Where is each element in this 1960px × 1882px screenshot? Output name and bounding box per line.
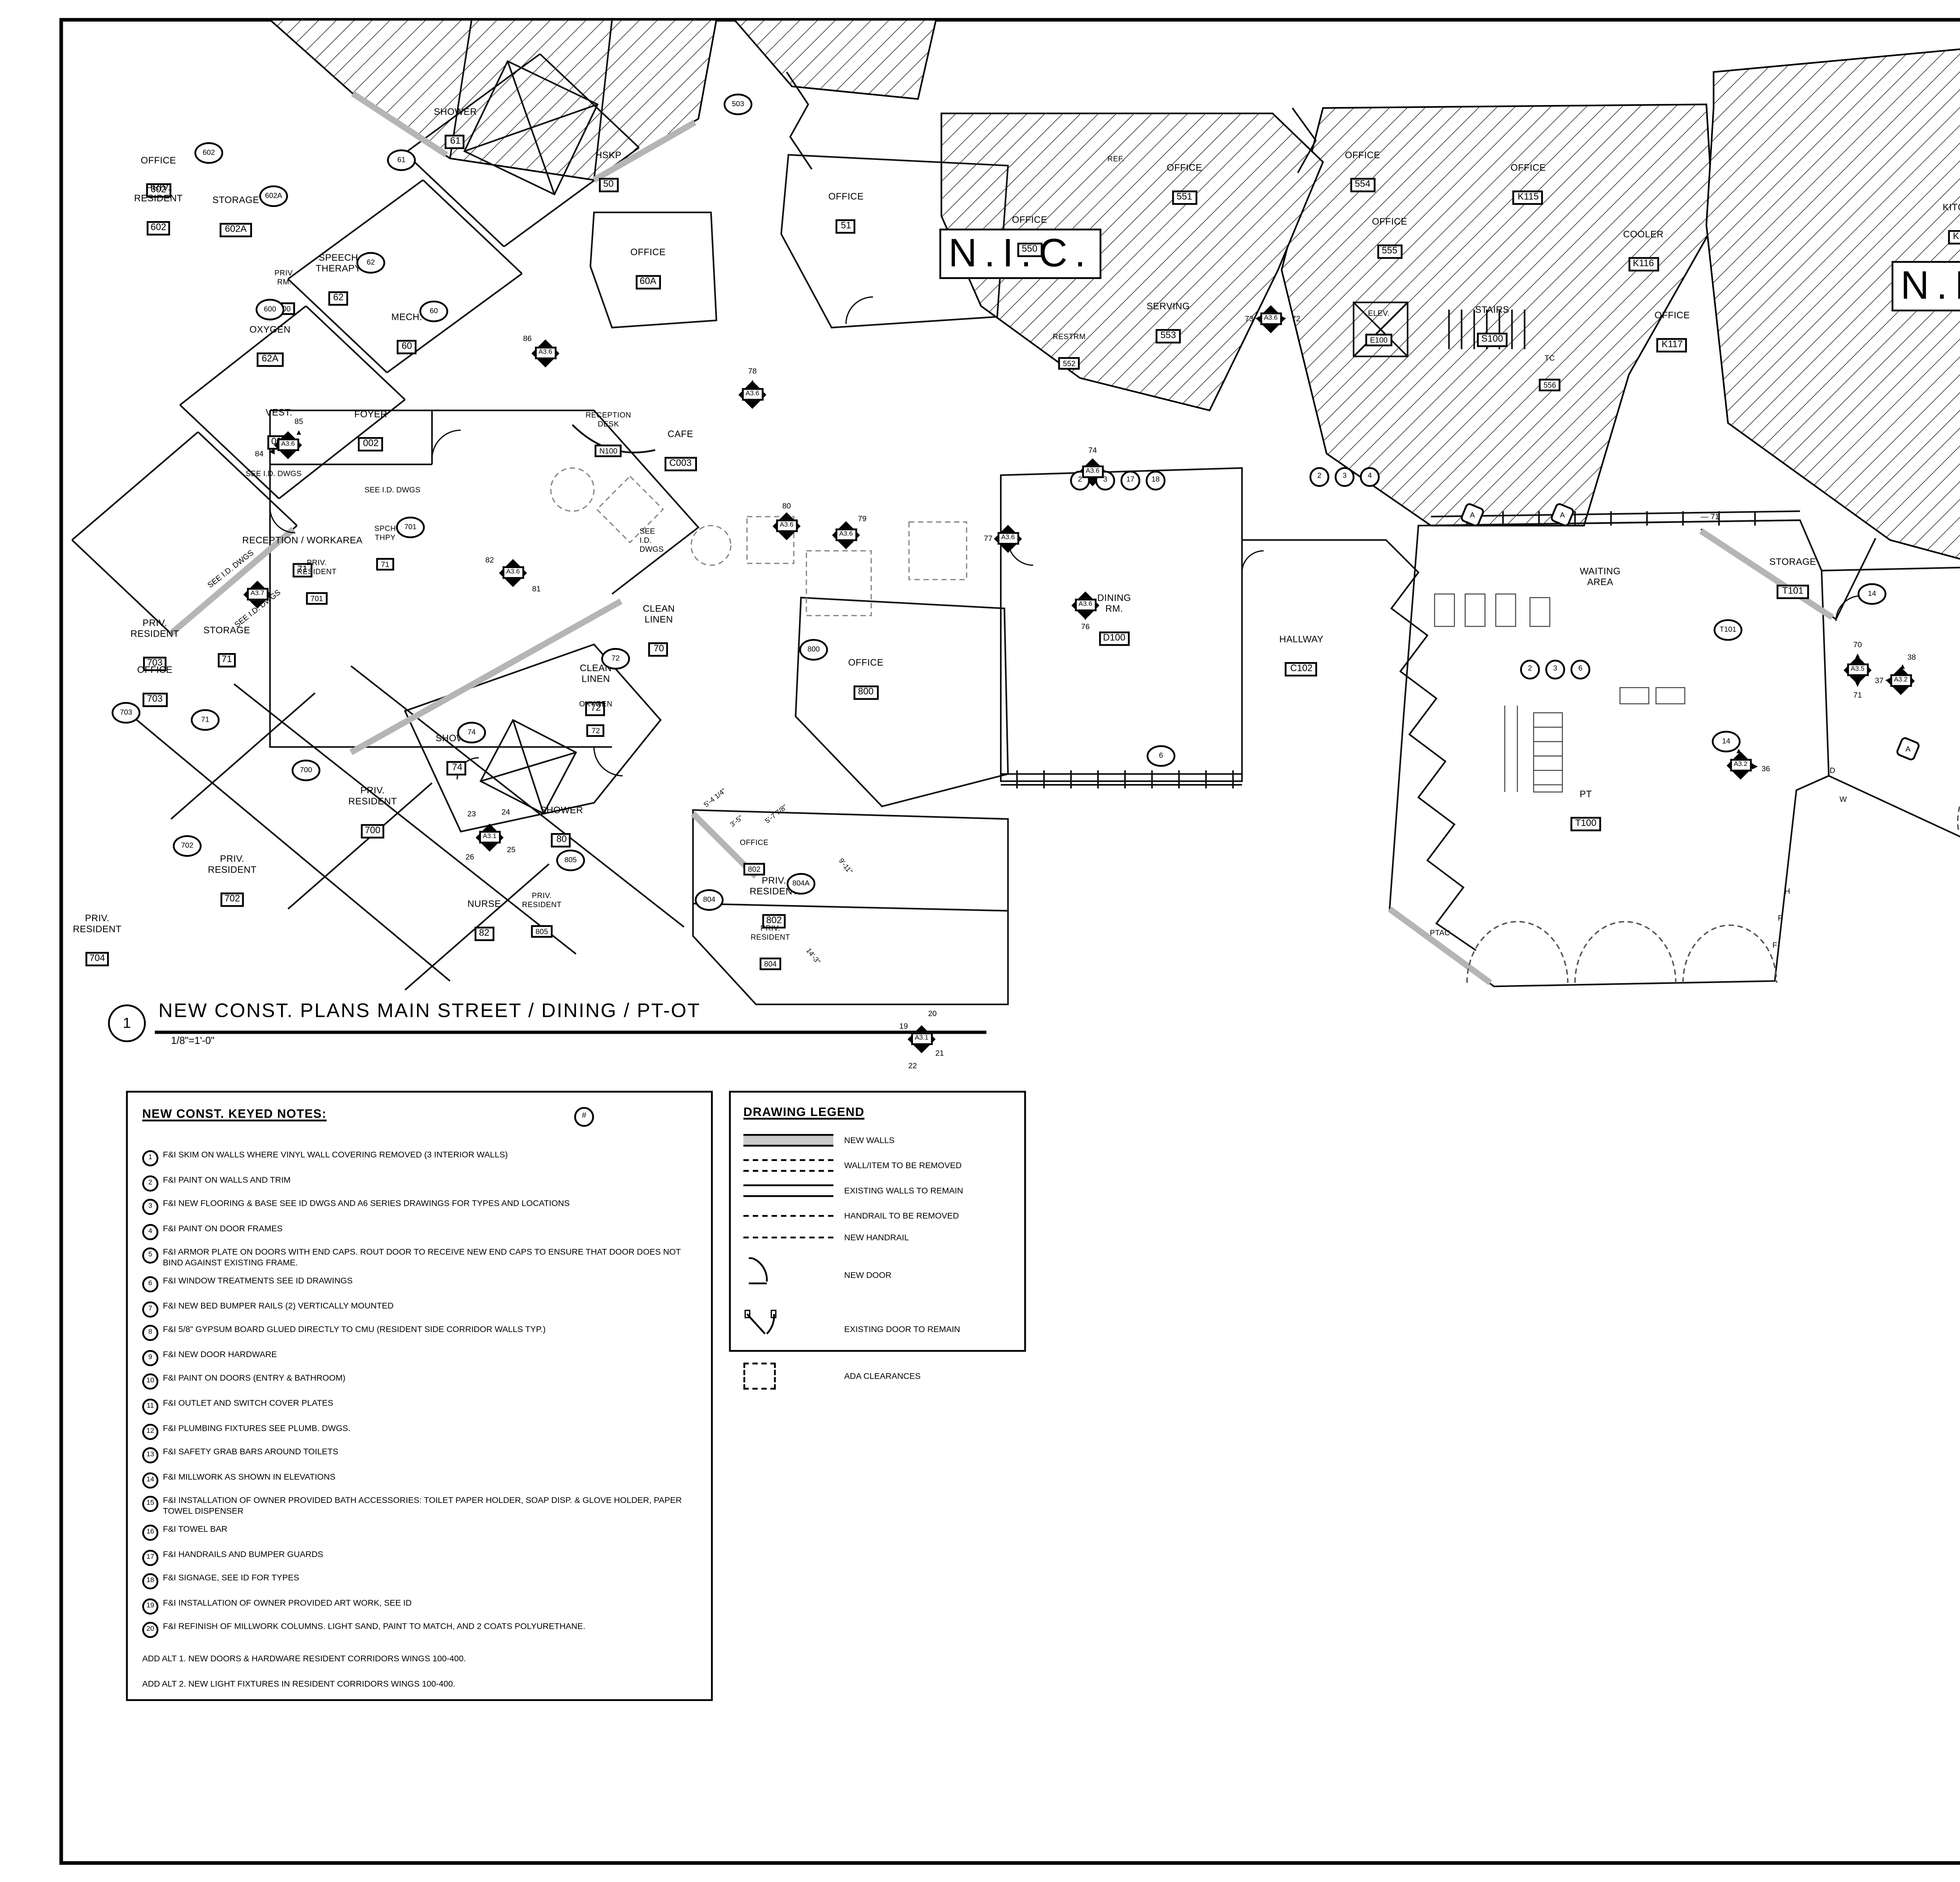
room-label: SPEECH THERAPY62 bbox=[316, 255, 361, 310]
room-name: REF. bbox=[1107, 156, 1125, 165]
keyed-note-text: F&I HANDRAILS AND BUMPER GUARDS bbox=[163, 1549, 323, 1565]
drawing-legend-panel: DRAWING LEGEND NEW WALLSWALL/ITEM TO BE … bbox=[729, 1091, 1026, 1352]
plan-annotation: 36 bbox=[1762, 764, 1770, 773]
plan-scale: 1/8"=1'-0" bbox=[171, 1037, 214, 1048]
reference-tag: 71 bbox=[191, 709, 220, 731]
reference-tag: 805 bbox=[556, 849, 585, 871]
legend-symbol-newdoor bbox=[743, 1254, 833, 1296]
room-number: 70 bbox=[649, 642, 668, 657]
legend-item: EXISTING DOOR TO REMAIN bbox=[743, 1309, 1011, 1350]
legend-label: EXISTING DOOR TO REMAIN bbox=[844, 1325, 960, 1334]
room-label: STAIRSS100 bbox=[1475, 307, 1509, 351]
room-number: D100 bbox=[1098, 632, 1130, 647]
keynote-tag: 2 bbox=[1310, 467, 1330, 487]
room-name: PRIV. RM. bbox=[274, 270, 296, 287]
room-label: PTAC bbox=[1430, 930, 1450, 938]
keyed-note-number: 19 bbox=[142, 1598, 158, 1614]
keyed-note-text: F&I 5/8" GYPSUM BOARD GLUED DIRECTLY TO … bbox=[163, 1325, 546, 1341]
room-label: TC556 bbox=[1539, 355, 1561, 397]
room-name: PRIV. RESIDENT bbox=[131, 621, 179, 642]
room-label: SHOWER61 bbox=[434, 109, 477, 153]
keynote-tag: 4 bbox=[1360, 467, 1380, 487]
reference-tag: 800 bbox=[799, 639, 828, 661]
reference-tag: 703 bbox=[112, 702, 140, 724]
keyed-note-number: 13 bbox=[142, 1448, 158, 1464]
keyed-note-text: F&I MILLWORK AS SHOWN IN ELEVATIONS bbox=[163, 1472, 336, 1488]
room-label: OFFICEK115 bbox=[1510, 165, 1546, 209]
keyed-note-number: 9 bbox=[142, 1350, 158, 1366]
room-label: MECH.60 bbox=[391, 315, 422, 359]
room-label: STORAGE71 bbox=[203, 628, 250, 672]
reference-tag: 602 bbox=[194, 142, 223, 164]
room-label: PRIV. RESIDENT704 bbox=[73, 916, 122, 970]
room-name: PRIV. RESIDENT bbox=[348, 788, 397, 809]
legend-item: HANDRAIL TO BE REMOVED bbox=[743, 1211, 1011, 1220]
room-number: 800 bbox=[853, 686, 878, 701]
keynote-sheet-ref: A3.6 bbox=[742, 388, 763, 400]
plan-annotation: 26 bbox=[465, 852, 474, 861]
room-label: SERVING553 bbox=[1147, 304, 1190, 348]
keyed-note: 8F&I 5/8" GYPSUM BOARD GLUED DIRECTLY TO… bbox=[142, 1325, 697, 1341]
room-number: 72 bbox=[587, 724, 604, 737]
legend-label: WALL/ITEM TO BE REMOVED bbox=[844, 1162, 962, 1171]
keyed-note: 7F&I NEW BED BUMPER RAILS (2) VERTICALLY… bbox=[142, 1301, 697, 1317]
keyed-note-text: F&I REFINISH OF MILLWORK COLUMNS. LIGHT … bbox=[163, 1622, 586, 1639]
keynote-tag: 17 bbox=[1120, 471, 1140, 491]
legend-label: NEW WALLS bbox=[844, 1136, 895, 1145]
furniture bbox=[1435, 594, 1960, 810]
keynote-sheet-ref: A3.1 bbox=[479, 831, 500, 843]
legend-label: NEW HANDRAIL bbox=[844, 1232, 909, 1241]
keyed-note: 13F&I SAFETY GRAB BARS AROUND TOILETS bbox=[142, 1448, 697, 1464]
room-name: CLEAN LINEN bbox=[643, 606, 675, 628]
room-label: OFFICE802 bbox=[740, 840, 768, 882]
keyed-note-text: F&I NEW DOOR HARDWARE bbox=[163, 1350, 277, 1366]
room-name: DINING RM. bbox=[1097, 595, 1131, 617]
keyed-note-text: F&I TOWEL BAR bbox=[163, 1525, 228, 1541]
room-name: OFFICE bbox=[1372, 219, 1407, 230]
room-name: STAIRS bbox=[1475, 307, 1509, 318]
plan-annotation: F bbox=[1772, 940, 1777, 949]
plan-annotation: 71 bbox=[1853, 690, 1862, 699]
room-label: RECEPTION DESKN100 bbox=[586, 412, 631, 463]
plan-title: NEW CONST. PLANS MAIN STREET / DINING / … bbox=[158, 1001, 701, 1022]
room-label: CAFEC003 bbox=[664, 432, 696, 475]
plan-annotation: 20 bbox=[928, 1009, 937, 1018]
keyed-note-number: 7 bbox=[142, 1301, 158, 1317]
room-name: OXYGEN bbox=[579, 701, 612, 710]
room-number: 002 bbox=[358, 437, 383, 452]
room-number: 60 bbox=[397, 340, 417, 355]
keyed-note: 20F&I REFINISH OF MILLWORK COLUMNS. LIGH… bbox=[142, 1622, 697, 1639]
room-name: OXYGEN bbox=[249, 327, 290, 338]
room-label: OXYGEN72 bbox=[579, 701, 612, 743]
keyed-note-text: F&I SKIM ON WALLS WHERE VINYL WALL COVER… bbox=[163, 1150, 508, 1166]
keynote-sheet-ref: A3.6 bbox=[503, 566, 523, 579]
keynote-tag: 3 bbox=[1545, 660, 1565, 680]
room-number: 701 bbox=[306, 592, 328, 604]
room-number: 62A bbox=[257, 352, 283, 368]
plan-annotation: 23 bbox=[467, 809, 476, 818]
room-label: DINING RM.D100 bbox=[1097, 595, 1131, 650]
add-alternate-note: ADD ALT 2. NEW LIGHT FIXTURES IN RESIDEN… bbox=[142, 1680, 697, 1689]
legend-symbol-newwall bbox=[743, 1134, 833, 1147]
room-name: STORAGE bbox=[212, 198, 259, 208]
room-label: OFFICE60A bbox=[630, 250, 666, 294]
room-label: COOLERK116 bbox=[1623, 232, 1664, 276]
room-name: RECEPTION / WORKAREA bbox=[242, 538, 363, 548]
legend-symbol-ada bbox=[743, 1363, 833, 1390]
room-label: OFFICE555 bbox=[1372, 219, 1407, 263]
keyed-note-number: 15 bbox=[142, 1497, 158, 1513]
room-name: FOYER bbox=[354, 412, 387, 423]
keyed-note-number: 8 bbox=[142, 1325, 158, 1341]
plan-annotation: F bbox=[1778, 913, 1782, 922]
plan-annotation: 85 bbox=[294, 417, 303, 426]
room-label: FOYER002 bbox=[354, 412, 387, 456]
room-number: 805 bbox=[531, 924, 553, 937]
room-label: OFFICE554 bbox=[1345, 152, 1380, 196]
legend-item: NEW DOOR bbox=[743, 1254, 1011, 1296]
room-label: WAITING AREA bbox=[1580, 569, 1621, 590]
reference-tag: 6 bbox=[1147, 745, 1175, 767]
plan-annotation: H bbox=[1785, 886, 1790, 895]
keyed-note-text: F&I ARMOR PLATE ON DOORS WITH END CAPS. … bbox=[163, 1248, 697, 1268]
plan-annotation: 22 bbox=[908, 1061, 917, 1070]
reference-tag: 804 bbox=[695, 889, 723, 911]
room-label: NURSE82 bbox=[467, 902, 501, 946]
keyed-note: 4F&I PAINT ON DOOR FRAMES bbox=[142, 1223, 697, 1240]
plan-annotation: — 71 bbox=[1701, 512, 1719, 521]
plan-annotation: 86 bbox=[523, 334, 532, 343]
keynote-sheet-ref: A3.5 bbox=[1847, 664, 1868, 676]
room-name: HALLWAY bbox=[1279, 637, 1324, 648]
keyed-note: 3F&I NEW FLOORING & BASE SEE ID DWGS AND… bbox=[142, 1199, 697, 1215]
keynote-sheet-ref: A3.6 bbox=[1075, 599, 1096, 611]
legend-symbol-dash bbox=[743, 1236, 833, 1238]
room-name: OFFICE bbox=[1167, 165, 1202, 176]
legend-label: NEW DOOR bbox=[844, 1271, 892, 1280]
room-number: 551 bbox=[1172, 191, 1197, 206]
keyed-note-number: 20 bbox=[142, 1622, 158, 1639]
keyed-notes-panel: NEW CONST. KEYED NOTES: # 1F&I SKIM ON W… bbox=[126, 1091, 713, 1701]
keyed-note-number: 16 bbox=[142, 1525, 158, 1541]
room-number: K116 bbox=[1628, 257, 1659, 272]
keyed-note-number: 1 bbox=[142, 1150, 158, 1166]
keynote-sheet-ref: A3.2 bbox=[1890, 674, 1911, 686]
room-name: NURSE bbox=[467, 902, 501, 912]
keyed-note-text: F&I NEW FLOORING & BASE SEE ID DWGS AND … bbox=[163, 1199, 570, 1215]
room-name: PRIV. RESIDENT bbox=[751, 925, 790, 942]
plan-annotation: 72 bbox=[1292, 314, 1300, 323]
keyed-note: 11F&I OUTLET AND SWITCH COVER PLATES bbox=[142, 1399, 697, 1415]
room-number: 704 bbox=[85, 952, 110, 967]
room-label: OXYGEN62A bbox=[249, 327, 290, 371]
room-label: STORAGET101 bbox=[1769, 559, 1816, 603]
reference-tag: 14 bbox=[1712, 731, 1740, 752]
reference-tag: 74 bbox=[457, 722, 486, 743]
keyed-note: 10F&I PAINT ON DOORS (ENTRY & BATHROOM) bbox=[142, 1374, 697, 1390]
reference-tag: 503 bbox=[724, 94, 752, 115]
room-name: SHOWER bbox=[540, 808, 583, 818]
room-name: WAITING AREA bbox=[1580, 569, 1621, 590]
room-number: 550 bbox=[1017, 243, 1042, 258]
keynote-sheet-ref: A3.6 bbox=[1082, 465, 1103, 477]
room-name: KITCHEN bbox=[1943, 205, 1960, 216]
plan-annotation: 82 bbox=[485, 555, 494, 564]
room-number: 80 bbox=[552, 833, 571, 848]
plan-annotation: 24 bbox=[501, 807, 510, 816]
keyed-note: 18F&I SIGNAGE, SEE ID FOR TYPES bbox=[142, 1574, 697, 1590]
plan-annotation: 78 bbox=[748, 366, 757, 375]
room-name: PRIV. RESIDENT bbox=[522, 893, 562, 910]
keyed-note-number: 10 bbox=[142, 1374, 158, 1390]
nic-label: N.I.C. bbox=[1891, 261, 1960, 312]
room-name: HSKP bbox=[595, 152, 622, 163]
legend-item: EXISTING WALLS TO REMAIN bbox=[743, 1185, 1011, 1198]
reference-tag: 14 bbox=[1858, 583, 1886, 605]
reference-tag: 72 bbox=[601, 648, 630, 670]
keyed-note-number: 4 bbox=[142, 1223, 158, 1240]
keyed-notes-title: NEW CONST. KEYED NOTES: bbox=[142, 1109, 697, 1122]
room-number: C102 bbox=[1285, 662, 1317, 677]
plan-annotation: 25 bbox=[507, 845, 515, 854]
keyed-note-text: F&I PAINT ON DOORS (ENTRY & BATHROOM) bbox=[163, 1374, 346, 1390]
room-number: 62 bbox=[328, 291, 348, 307]
room-number: 602A bbox=[220, 223, 251, 238]
plan-number-bubble: 1 bbox=[108, 1004, 146, 1042]
keyed-note-text: F&I OUTLET AND SWITCH COVER PLATES bbox=[163, 1399, 334, 1415]
room-label: HALLWAYC102 bbox=[1279, 637, 1324, 681]
reference-tag: 60 bbox=[419, 301, 448, 322]
room-label: SHOWER80 bbox=[540, 808, 583, 852]
plan-annotation: 37 bbox=[1875, 676, 1884, 685]
room-name: SPCH THPY bbox=[374, 526, 396, 543]
keyed-note-text: F&I INSTALLATION OF OWNER PROVIDED ART W… bbox=[163, 1598, 412, 1614]
keyed-note-text: F&I PLUMBING FIXTURES SEE PLUMB. DWGS. bbox=[163, 1423, 350, 1439]
keyed-note-text: F&I PAINT ON WALLS AND TRIM bbox=[163, 1175, 291, 1191]
keyed-note-text: F&I PAINT ON DOOR FRAMES bbox=[163, 1223, 283, 1240]
keynote-tag: 18 bbox=[1146, 471, 1166, 491]
keyed-note: 17F&I HANDRAILS AND BUMPER GUARDS bbox=[142, 1549, 697, 1565]
keynote-sheet-ref: A3.7 bbox=[247, 588, 268, 600]
room-number: 71 bbox=[376, 557, 394, 570]
keynote-tag: 2 bbox=[1520, 660, 1540, 680]
room-number: S100 bbox=[1477, 333, 1508, 348]
plan-annotation: SEE I.D. DWGS bbox=[246, 469, 302, 478]
room-label: KITCHENK105 bbox=[1943, 205, 1960, 249]
room-label: OFFICE703 bbox=[137, 668, 172, 711]
keynote-tag: 3 bbox=[1335, 467, 1355, 487]
keyed-note-text: F&I WINDOW TREATMENTS SEE ID DRAWINGS bbox=[163, 1276, 353, 1292]
keynote-sheet-ref: A3.6 bbox=[278, 439, 298, 451]
room-name: OFFICE bbox=[141, 158, 176, 169]
plan-annotation: ▲ bbox=[295, 428, 303, 437]
keyed-note: 19F&I INSTALLATION OF OWNER PROVIDED ART… bbox=[142, 1598, 697, 1614]
room-label: PRIV. RESIDENT602 bbox=[134, 185, 183, 240]
plan-annotation: 79 bbox=[858, 514, 866, 523]
legend-item: ADA CLEARANCES bbox=[743, 1363, 1011, 1390]
legend-label: EXISTING WALLS TO REMAIN bbox=[844, 1187, 963, 1196]
legend-symbol-dashdot bbox=[743, 1214, 833, 1216]
reference-tag: 62 bbox=[356, 252, 385, 274]
room-number: 50 bbox=[599, 178, 618, 193]
plan-annotation: ▶ bbox=[1752, 761, 1758, 772]
plan-annotation: 19 bbox=[899, 1022, 908, 1031]
reference-tag: 804A bbox=[787, 873, 815, 895]
room-number: 554 bbox=[1350, 178, 1375, 193]
room-name: OFFICE bbox=[1345, 152, 1380, 163]
room-number: C003 bbox=[664, 457, 696, 472]
plan-annotation: ◀ bbox=[269, 446, 275, 457]
keynote-sheet-ref: A3.6 bbox=[776, 519, 797, 532]
reference-tag: T101 bbox=[1713, 619, 1742, 641]
plan-annotation: 73 bbox=[1245, 314, 1254, 323]
room-name: OFFICE bbox=[1510, 165, 1546, 176]
room-number: 51 bbox=[836, 219, 856, 234]
room-number: 702 bbox=[220, 892, 245, 907]
room-name: PRIV. RESIDENT bbox=[73, 916, 122, 937]
room-label: SPCH THPY71 bbox=[374, 526, 396, 576]
room-label: OFFICE550 bbox=[1012, 218, 1047, 261]
keyed-note-text: F&I INSTALLATION OF OWNER PROVIDED BATH … bbox=[163, 1497, 697, 1517]
add-alternate-note: ADD ALT 1. NEW DOORS & HARDWARE RESIDENT… bbox=[142, 1655, 697, 1664]
room-name: PRIV. RESIDENT bbox=[208, 857, 256, 878]
room-name: PTAC bbox=[1430, 930, 1450, 938]
room-name: CAFE bbox=[664, 432, 696, 442]
keyed-note-text: F&I NEW BED BUMPER RAILS (2) VERTICALLY … bbox=[163, 1301, 394, 1317]
keynote-symbol: # bbox=[574, 1107, 594, 1127]
legend-item: WALL/ITEM TO BE REMOVED bbox=[743, 1160, 1011, 1172]
plan-annotation: SEE I.D. DWGS bbox=[640, 526, 664, 554]
room-number: 61 bbox=[446, 134, 465, 150]
keyed-note: 1F&I SKIM ON WALLS WHERE VINYL WALL COVE… bbox=[142, 1150, 697, 1166]
room-label: PRIV. RESIDENT700 bbox=[348, 788, 397, 842]
room-name: RECEPTION DESK bbox=[586, 412, 631, 429]
room-number: T100 bbox=[1570, 817, 1601, 832]
plan-annotation: 81 bbox=[532, 584, 541, 593]
room-label: ELEV.E100 bbox=[1365, 310, 1392, 352]
room-label: PTT100 bbox=[1570, 792, 1601, 836]
keyed-note-number: 11 bbox=[142, 1399, 158, 1415]
plan-annotation: 38 bbox=[1907, 653, 1916, 662]
keyed-note-number: 3 bbox=[142, 1199, 158, 1215]
room-label: OFFICEK117 bbox=[1655, 313, 1690, 357]
legend-symbol-2solid bbox=[743, 1185, 833, 1198]
room-number: 60A bbox=[635, 275, 661, 290]
legend-item: NEW WALLS bbox=[743, 1134, 1011, 1147]
room-number: 700 bbox=[360, 824, 385, 839]
room-label: OFFICE51 bbox=[828, 194, 864, 238]
room-name: OFFICE bbox=[828, 194, 864, 205]
room-number: 555 bbox=[1377, 245, 1402, 260]
keyed-note-text: F&I SAFETY GRAB BARS AROUND TOILETS bbox=[163, 1448, 338, 1464]
dashed-arches bbox=[1467, 767, 1960, 983]
legend-symbol-existdoor bbox=[743, 1309, 833, 1350]
room-number: K115 bbox=[1513, 191, 1544, 206]
plan-annotation: 76 bbox=[1081, 622, 1090, 631]
room-number: 553 bbox=[1156, 329, 1181, 344]
plan-annotation: 21 bbox=[935, 1049, 944, 1058]
room-number: 82 bbox=[474, 927, 494, 942]
room-name: OFFICE bbox=[137, 668, 172, 678]
room-name: ELEV. bbox=[1365, 310, 1392, 319]
room-number: N100 bbox=[595, 444, 622, 457]
keyed-note: 16F&I TOWEL BAR bbox=[142, 1525, 697, 1541]
keynote-tag: 6 bbox=[1570, 660, 1590, 680]
room-name: STORAGE bbox=[1769, 559, 1816, 570]
plan-annotation: SEE I.D. DWGS bbox=[365, 485, 421, 494]
reference-tag: 700 bbox=[292, 760, 320, 781]
room-label: PRIV. RESIDENT805 bbox=[522, 893, 562, 943]
room-number: 703 bbox=[142, 693, 167, 708]
drawing-legend-list: NEW WALLSWALL/ITEM TO BE REMOVEDEXISTING… bbox=[743, 1134, 1011, 1390]
keyed-note-number: 12 bbox=[142, 1423, 158, 1439]
reference-tag: 61 bbox=[387, 149, 416, 171]
room-name: PRIV. RESIDENT bbox=[297, 560, 337, 577]
reference-tag: 702 bbox=[173, 835, 201, 857]
keynote-sheet-ref: A3.1 bbox=[911, 1033, 932, 1045]
room-label: HSKP50 bbox=[595, 152, 622, 196]
room-name: SPEECH THERAPY bbox=[316, 255, 361, 277]
room-number: K105 bbox=[1948, 230, 1960, 245]
room-number: 556 bbox=[1539, 378, 1561, 391]
room-name: TC bbox=[1539, 355, 1561, 364]
room-label: PRIV. RESIDENT701 bbox=[297, 560, 337, 610]
keyed-note: 9F&I NEW DOOR HARDWARE bbox=[142, 1350, 697, 1366]
legend-symbol-2dash bbox=[743, 1160, 833, 1172]
reference-tag: 602A bbox=[259, 185, 288, 207]
keyed-note: 14F&I MILLWORK AS SHOWN IN ELEVATIONS bbox=[142, 1472, 697, 1488]
room-name: PT bbox=[1570, 792, 1601, 802]
sheet: 1 NEW CONST. PLANS MAIN STREET / DINING … bbox=[0, 0, 1960, 1882]
room-name: MECH. bbox=[391, 315, 422, 325]
room-label: REF. bbox=[1107, 156, 1125, 165]
room-label: PRIV. RESIDENT702 bbox=[208, 857, 256, 911]
plan-annotation: D bbox=[1829, 766, 1835, 775]
plan-annotation: 80 bbox=[782, 501, 791, 510]
drawing-legend-title: DRAWING LEGEND bbox=[743, 1107, 1011, 1120]
keynote-sheet-ref: A3.6 bbox=[836, 528, 857, 541]
plan-annotation: 77 bbox=[984, 534, 993, 543]
room-name: COOLER bbox=[1623, 232, 1664, 243]
room-name: OFFICE bbox=[848, 660, 884, 671]
room-number: 804 bbox=[759, 957, 781, 970]
keyed-note: 15F&I INSTALLATION OF OWNER PROVIDED BAT… bbox=[142, 1497, 697, 1517]
room-name: PRIV. RESIDENT bbox=[134, 185, 183, 207]
room-name: SHOWER bbox=[434, 109, 477, 120]
room-name: RESTRM bbox=[1053, 334, 1086, 342]
room-name: OFFICE bbox=[1655, 313, 1690, 323]
room-name: OFFICE bbox=[1012, 218, 1047, 228]
keyed-note-number: 6 bbox=[142, 1276, 158, 1292]
room-name: STORAGE bbox=[203, 628, 250, 639]
plan-annotation: 74 bbox=[1088, 445, 1097, 454]
room-label: CLEAN LINEN70 bbox=[643, 606, 675, 661]
room-name: OFFICE bbox=[740, 840, 768, 848]
room-label: PRIV. RESIDENT804 bbox=[751, 925, 790, 976]
keyed-notes-list: 1F&I SKIM ON WALLS WHERE VINYL WALL COVE… bbox=[142, 1150, 697, 1639]
room-name: SERVING bbox=[1147, 304, 1190, 314]
room-name: CLEAN LINEN bbox=[580, 666, 612, 687]
room-label: OFFICE551 bbox=[1167, 165, 1202, 209]
plan-annotation: W bbox=[1840, 795, 1847, 804]
keyed-note-text: F&I SIGNAGE, SEE ID FOR TYPES bbox=[163, 1574, 299, 1590]
room-number: E100 bbox=[1365, 333, 1392, 346]
keynote-sheet-ref: A3.2 bbox=[1730, 759, 1751, 771]
keyed-note: 6F&I WINDOW TREATMENTS SEE ID DRAWINGS bbox=[142, 1276, 697, 1292]
keyed-note: 2F&I PAINT ON WALLS AND TRIM bbox=[142, 1175, 697, 1191]
